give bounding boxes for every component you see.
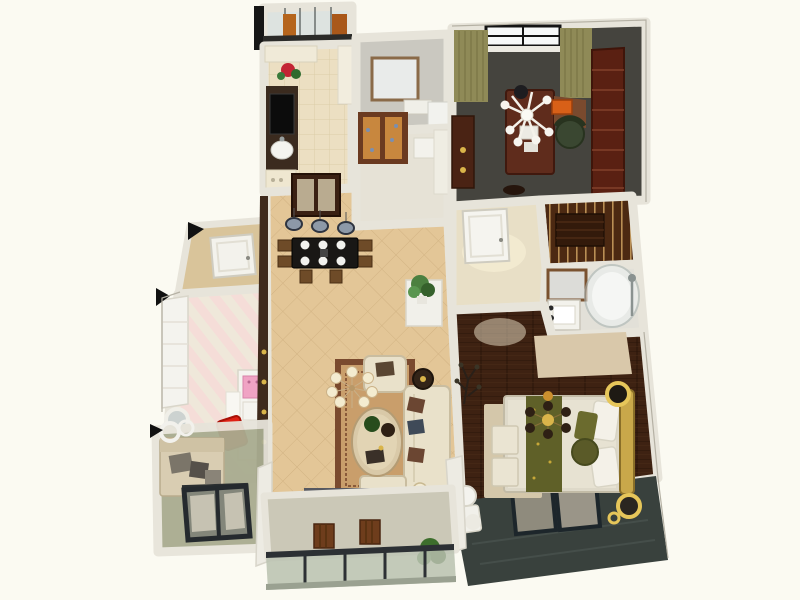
dining-plate-3 [337, 241, 346, 250]
living-chandelier-center [349, 385, 355, 391]
branch-leaf [459, 363, 464, 368]
dining-mirror-panel [297, 179, 314, 211]
bathroom-sink-basin [553, 306, 575, 324]
bedroom-gold-ring-mirror [607, 383, 629, 405]
kitchen-upper-cabinets [265, 46, 317, 62]
kids-room-door-handle [246, 256, 250, 260]
pendant-lamp-2 [312, 220, 328, 232]
kitchen-sink [271, 141, 293, 159]
office-chandelier-bulb-5 [545, 128, 554, 137]
bedroom-vanity-cloth [465, 514, 481, 530]
dining-chair-3 [358, 240, 372, 251]
office-chandelier-bulb-6 [543, 96, 552, 105]
kitchen-tall-cabinet [338, 46, 352, 104]
pendant-lamp-3 [338, 222, 354, 234]
branch-leaf-3 [455, 379, 460, 384]
office-chandelier-bulb-2 [506, 126, 515, 135]
hallway-door-handle [499, 238, 503, 242]
kitchen-knob-2 [279, 178, 283, 182]
office-chandelier-bulb [501, 101, 510, 110]
balcony-chair-2 [360, 520, 380, 544]
lounge-skylight-pane [190, 494, 216, 532]
coffee-table-green-bowl [364, 416, 380, 432]
lounge-skylight-divider [217, 488, 219, 538]
small-bathroom-mirror [372, 58, 418, 100]
office-sideboard-gold-decor [460, 147, 466, 153]
dining-centerpiece [320, 249, 328, 257]
kitchen-flowers-leaf [291, 69, 301, 79]
dining-chair [278, 240, 292, 251]
room-office [452, 22, 646, 206]
coffee-table-dark-bowl [381, 423, 395, 437]
wall-sconce-2 [262, 380, 267, 385]
living-chandelier-shade [331, 373, 342, 384]
office-bag [503, 185, 525, 195]
bedroom-chandelier-rose [543, 391, 553, 401]
bathroom-shower-head [628, 274, 636, 282]
coffee-table-gold-decor [379, 446, 384, 451]
floor-plan-render [0, 0, 800, 600]
kitchen-flowers-leaf-2 [277, 72, 285, 80]
top-balcony-wood-post [283, 14, 296, 36]
armchair-pillow [375, 361, 394, 377]
entry-wardrobe [434, 130, 448, 194]
entry-door-glass-dot-3 [370, 148, 374, 152]
floor-plan-svg [0, 0, 800, 600]
bedroom-chandelier-center [542, 414, 554, 426]
office-ceiling-mount [514, 85, 528, 99]
kitchen-cooktop [270, 94, 294, 134]
room-hallway [452, 200, 546, 310]
dining-plate-6 [337, 257, 346, 266]
office-chandelier-bulb-3 [514, 138, 523, 147]
bedroom-chandelier-shade-4 [525, 423, 535, 433]
lounge-cushion-grey [169, 452, 194, 474]
branch-leaf-2 [475, 365, 480, 370]
bed-round-cushion [572, 439, 598, 465]
kitchen-knob [271, 178, 275, 182]
bedroom-spotlight-glow [474, 318, 526, 346]
console-plant-pot [417, 296, 427, 304]
entry-stained-door-panel-2 [385, 117, 402, 159]
wall-sconce [262, 350, 267, 355]
side-table-gold-decor [420, 376, 426, 382]
pendant-lamp [286, 218, 302, 230]
dining-plate-5 [319, 257, 328, 266]
sofa-pillow-brown-2 [407, 447, 425, 463]
entry-stained-door-panel [363, 117, 380, 159]
living-chandelier-shade-7 [359, 397, 370, 408]
kids-wardrobe [162, 296, 188, 408]
bedroom-chandelier-shade-3 [561, 407, 571, 417]
office-laptop [552, 100, 572, 114]
bedroom-chandelier-shade [525, 407, 535, 417]
top-balcony-wood-post-2 [332, 14, 347, 36]
console-plant-2 [421, 283, 435, 297]
office-sideboard-gold-decor-2 [460, 167, 466, 173]
living-chandelier-shade-5 [367, 387, 378, 398]
dining-chair-5 [300, 270, 312, 283]
sofa-pillow-blue [407, 419, 425, 435]
balcony-chair [314, 524, 334, 548]
small-bathroom-washer [428, 102, 448, 126]
room-main-bathroom [546, 264, 644, 336]
runner-gold-dot-5 [533, 477, 536, 480]
living-chandelier-shade-6 [335, 397, 346, 408]
branch-leaf-4 [477, 385, 482, 390]
lounge-cushion-taupe [205, 470, 221, 484]
bedroom-chandelier-shade-5 [543, 429, 553, 439]
lounge-skylight-pane-2 [224, 492, 245, 530]
bedroom-chandelier-shade-2 [543, 401, 553, 411]
room-kitchen [264, 44, 352, 192]
entry-door-glass-dot-2 [390, 138, 394, 142]
wall-sconce-3 [262, 410, 267, 415]
office-chandelier-bulb-4 [532, 136, 541, 145]
living-chandelier-shade-4 [327, 387, 338, 398]
bedroom-top-rug [534, 332, 632, 378]
room-walk-in-closet [540, 196, 638, 268]
bed-bench-ottoman-2 [492, 458, 518, 486]
dining-plate [301, 241, 310, 250]
kids-drawer-knob [248, 381, 251, 384]
kitchen-faucet [280, 137, 285, 142]
coffee-table-tray [365, 449, 385, 464]
entry-door-glass-dot-4 [394, 124, 398, 128]
bedroom-chandelier-shade-6 [561, 423, 571, 433]
room-bedroom [452, 306, 668, 586]
bathroom-shower-tray [592, 272, 632, 320]
entry-door-glass-dot [366, 128, 370, 132]
office-chandelier-center [521, 109, 533, 121]
dining-chair-4 [358, 256, 372, 267]
bathroom-vanity-mirror [548, 270, 586, 300]
living-chandelier-shade-3 [363, 373, 374, 384]
bedroom-gold-ring-mirror-2 [618, 495, 640, 517]
room-lounge-balcony [156, 421, 268, 552]
office-bookshelf [592, 48, 624, 202]
living-chandelier-shade-2 [347, 367, 358, 378]
runner-gold-dot-3 [537, 443, 540, 446]
dining-chair-6 [330, 270, 342, 283]
dining-plate-2 [319, 241, 328, 250]
dining-plate-4 [301, 257, 310, 266]
office-window-sill [486, 46, 560, 52]
bed-bench-ottoman [492, 426, 518, 454]
dining-mirror-panel-2 [318, 179, 335, 211]
room-entry-hall [356, 112, 448, 226]
dining-chair-2 [278, 256, 292, 267]
runner-gold-dot-4 [549, 461, 552, 464]
